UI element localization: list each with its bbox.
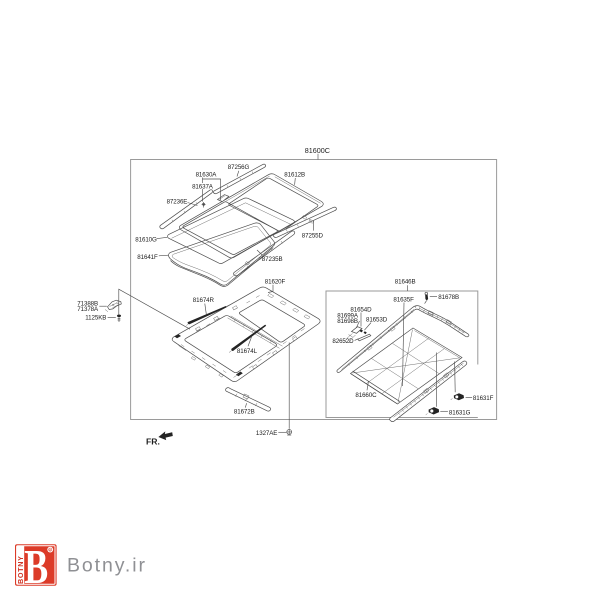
svg-text:87236E: 87236E xyxy=(167,198,188,205)
svg-text:81631F: 81631F xyxy=(473,395,494,402)
svg-text:87256G: 87256G xyxy=(228,164,250,171)
svg-text:81600C: 81600C xyxy=(305,146,330,155)
svg-text:Botny.ir: Botny.ir xyxy=(67,555,147,577)
svg-text:81641F: 81641F xyxy=(137,254,158,261)
svg-text:FR.: FR. xyxy=(146,437,160,447)
svg-text:81672B: 81672B xyxy=(234,409,255,416)
svg-text:82652D: 82652D xyxy=(332,338,354,345)
svg-text:81635F: 81635F xyxy=(393,297,414,304)
svg-text:81610G: 81610G xyxy=(135,236,157,243)
svg-text:B: B xyxy=(24,541,48,595)
svg-text:81620F: 81620F xyxy=(265,278,286,285)
svg-text:81674L: 81674L xyxy=(237,348,258,355)
svg-text:87235B: 87235B xyxy=(262,256,283,263)
svg-text:81698B: 81698B xyxy=(337,318,358,325)
svg-text:81630A: 81630A xyxy=(196,171,218,178)
svg-text:81678B: 81678B xyxy=(438,294,459,301)
svg-text:81660C: 81660C xyxy=(355,392,377,399)
svg-text:81631G: 81631G xyxy=(449,409,471,416)
svg-text:81653D: 81653D xyxy=(366,316,388,323)
svg-text:1125KB: 1125KB xyxy=(85,314,106,321)
svg-text:81637A: 81637A xyxy=(192,183,214,190)
svg-text:R: R xyxy=(49,548,51,552)
svg-text:81674R: 81674R xyxy=(193,297,215,304)
svg-text:87255D: 87255D xyxy=(302,232,324,239)
svg-text:1327AE: 1327AE xyxy=(256,430,277,437)
svg-text:81646B: 81646B xyxy=(395,279,416,286)
svg-text:71378A: 71378A xyxy=(77,306,99,313)
svg-text:81612B: 81612B xyxy=(284,172,305,179)
